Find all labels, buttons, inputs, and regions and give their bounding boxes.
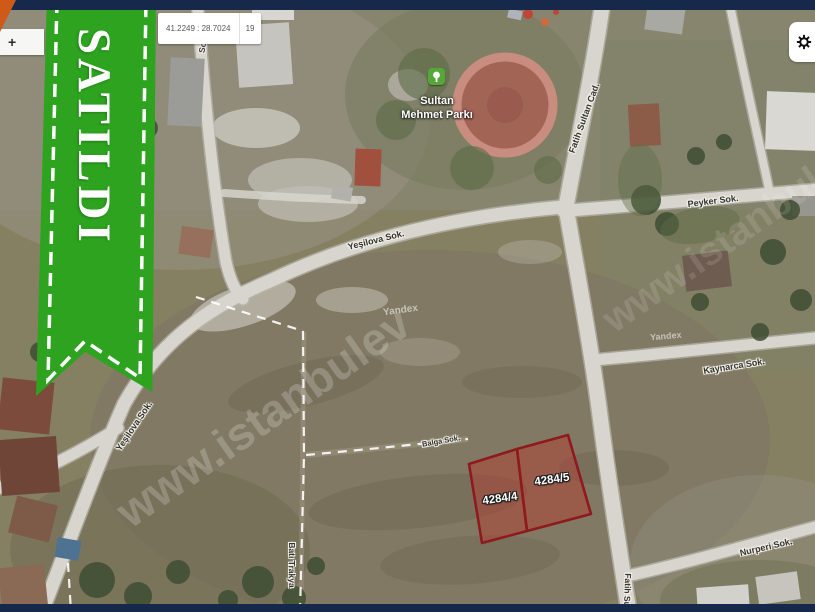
top-bar — [0, 0, 815, 10]
sold-label: SATILDI — [67, 28, 121, 246]
park-icon[interactable] — [428, 68, 445, 85]
park-name-line1: Sultan — [401, 94, 473, 108]
street-label-bati-trakya: Batı Trakya — [287, 542, 297, 587]
sold-ribbon: SATILDI — [36, 0, 156, 400]
plus-icon: + — [8, 35, 16, 49]
settings-button[interactable] — [789, 22, 815, 62]
zoom-level: 19 — [239, 13, 261, 44]
bottom-bar — [0, 604, 815, 612]
park-label[interactable]: Sultan Mehmet Parkı — [401, 94, 473, 122]
park-name-line2: Mehmet Parkı — [401, 108, 473, 122]
gear-icon — [795, 33, 813, 51]
coordinates-display: 41.2249 : 28.7024 19 — [158, 13, 261, 44]
tree-icon — [431, 71, 442, 83]
listing-map-screenshot: www.istanbulev www.istanbulev Yandex Yan… — [0, 0, 815, 612]
coordinates-value: 41.2249 : 28.7024 — [158, 13, 239, 44]
